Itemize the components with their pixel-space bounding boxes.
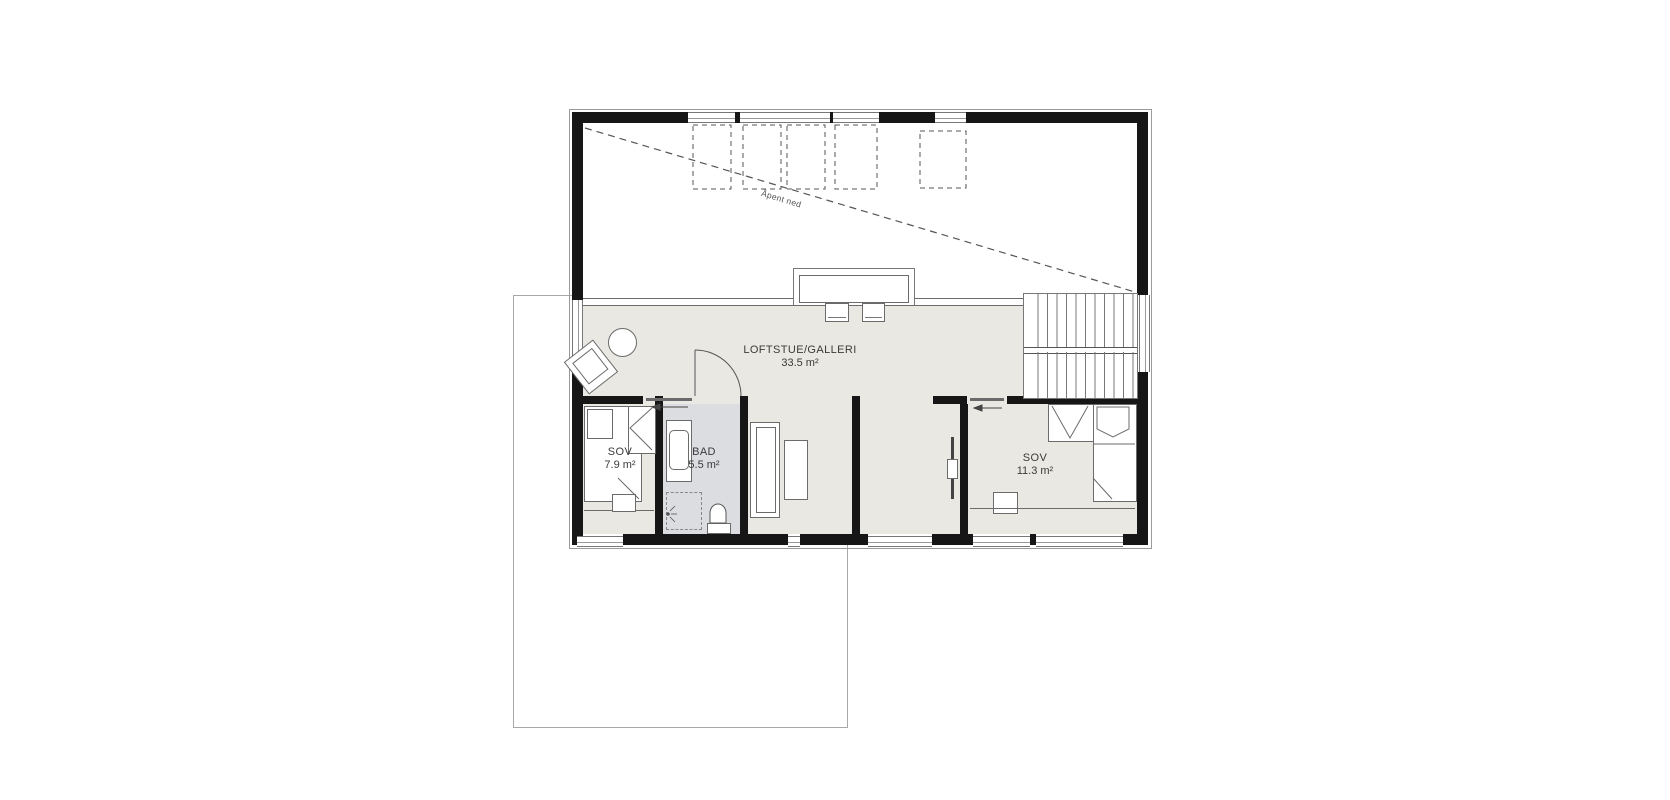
desk-stool-2 — [862, 303, 885, 322]
desk-stool-1 — [825, 303, 849, 322]
label-bedroom-small-area: 7.9 m² — [575, 459, 665, 472]
wall-int-corridor-bedroom — [960, 404, 968, 534]
bed-small-pillow — [587, 409, 613, 439]
lower-level-outline-bottom — [513, 727, 848, 728]
sliding-door-handle — [947, 459, 958, 479]
nightstand-large-bedroom — [993, 492, 1018, 514]
bench-large-bedroom — [970, 508, 1135, 509]
label-loft-name: LOFTSTUE/GALLERI — [700, 344, 900, 357]
round-table — [608, 328, 637, 357]
bed-large — [1093, 404, 1137, 502]
stair-treads-lower — [1029, 352, 1137, 398]
window-bottom-4 — [973, 536, 1030, 547]
wall-bottom-3 — [800, 534, 868, 545]
wall-top-4 — [879, 112, 935, 123]
stair-treads-upper — [1029, 294, 1137, 347]
window-bottom-3 — [868, 536, 932, 547]
skylight-window-1 — [688, 112, 735, 123]
label-bedroom-large-area: 11.3 m² — [985, 465, 1085, 478]
toilet-tank — [707, 523, 731, 534]
sliding-door-bedroom-large — [970, 398, 1004, 401]
lower-level-outline-top — [513, 295, 573, 296]
sofa-seat — [756, 427, 776, 513]
wall-int-bedroom-large-top-a — [933, 396, 967, 404]
shower — [666, 492, 702, 530]
skylight-window-3 — [833, 112, 879, 123]
window-left-loft — [572, 300, 583, 373]
wall-top-1 — [572, 112, 688, 123]
floor-plan: LOFTSTUE/GALLERI 33.5 m² SOV 7.9 m² BAD … — [0, 0, 1670, 800]
drawer-unit-small-bedroom — [612, 494, 636, 512]
skylight-window-4 — [935, 112, 966, 123]
wall-left-1 — [572, 112, 583, 300]
skylight-window-2 — [740, 112, 830, 123]
coffee-table — [784, 440, 808, 500]
wall-right-1 — [1137, 112, 1148, 295]
desk — [799, 275, 909, 303]
wall-bottom-2 — [623, 534, 788, 545]
wall-int-bedroom-small-top — [577, 396, 643, 404]
doorway-floor-patch-2 — [695, 396, 740, 404]
label-bathroom-name: BAD — [660, 446, 748, 459]
wall-top-5 — [966, 112, 1148, 123]
window-right-stairs — [1139, 295, 1150, 372]
label-loft-area: 33.5 m² — [700, 357, 900, 370]
label-bathroom-area: 5.5 m² — [660, 459, 748, 472]
wall-bottom-4 — [932, 534, 973, 545]
label-bedroom-large-name: SOV — [985, 452, 1085, 465]
wall-int-strip-corridor — [852, 396, 860, 534]
label-bedroom-small: SOV 7.9 m² — [575, 446, 665, 472]
wardrobe-large-bedroom — [1048, 404, 1094, 442]
sliding-door-bedroom-small — [646, 398, 692, 401]
window-bottom-5 — [1036, 536, 1123, 547]
label-bedroom-small-name: SOV — [575, 446, 665, 459]
label-loft: LOFTSTUE/GALLERI 33.5 m² — [700, 344, 900, 370]
window-bottom-1 — [577, 536, 623, 547]
staircase — [1023, 293, 1138, 399]
lower-level-outline-right — [847, 545, 848, 728]
window-bottom-2 — [788, 536, 800, 547]
label-bathroom: BAD 5.5 m² — [660, 446, 748, 472]
wall-right-2 — [1137, 372, 1148, 545]
lower-level-outline-left — [513, 295, 514, 728]
label-bedroom-large: SOV 11.3 m² — [985, 452, 1085, 478]
wall-bottom-6 — [1123, 534, 1148, 545]
